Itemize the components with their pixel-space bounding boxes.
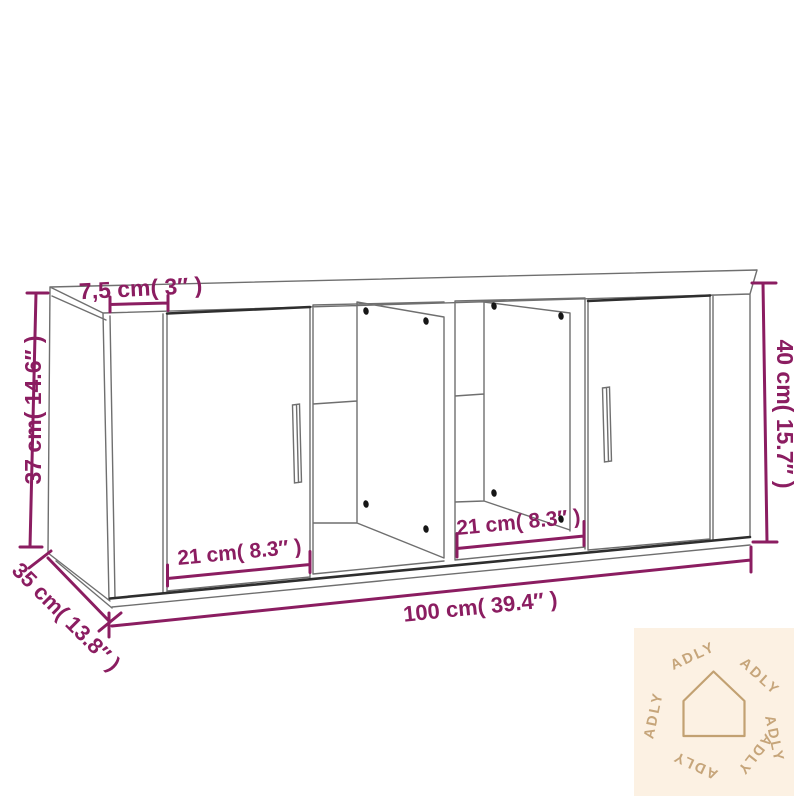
dim-label-left-height: 37 cm( 14.6″ ) [20,335,46,484]
cabinet-dimension-diagram: 7,5 cm( 3″ ) 37 cm( 14.6″ ) 40 cm( 15.7″… [0,0,800,800]
watermark-badge: ADLY ADLY ADLY ADLY ADLY ADLY [634,628,794,796]
dim-label-right-height: 40 cm( 15.7″ ) [772,339,798,488]
dimension-diagram-page: 7,5 cm( 3″ ) 37 cm( 14.6″ ) 40 cm( 15.7″… [0,0,800,800]
left-door-handle [293,404,302,483]
right-door-handle [603,387,612,462]
